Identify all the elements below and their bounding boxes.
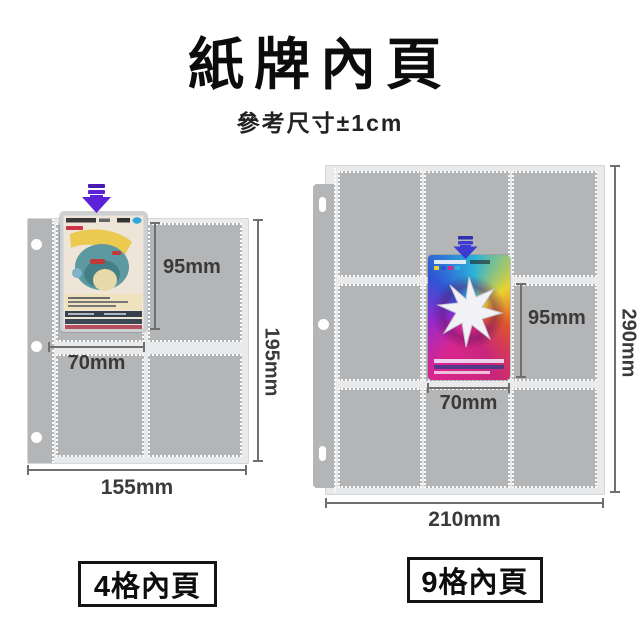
pocket	[338, 284, 422, 381]
dimension-line-card-width	[427, 387, 510, 389]
trading-card	[60, 212, 147, 332]
pocket	[338, 171, 422, 277]
pocket	[512, 284, 597, 381]
card-width-label: 70mm	[48, 352, 145, 375]
dimension-line-page-width	[27, 469, 247, 471]
trading-card	[428, 255, 510, 380]
card-width-label: 70mm	[427, 392, 510, 415]
down-arrow-icon	[452, 236, 479, 259]
nine-pocket-caption: 9格內頁	[407, 557, 543, 603]
dimension-line-card-width	[48, 346, 145, 348]
pocket	[148, 223, 242, 342]
page-width-label: 155mm	[27, 476, 247, 500]
four-pocket-caption: 4格內頁	[78, 561, 217, 607]
binder-hole	[31, 341, 42, 352]
nine-pocket-caption-text: 9格內頁	[421, 559, 528, 601]
dimension-line-page-width	[325, 502, 604, 504]
binder-hole	[319, 197, 326, 212]
pocket	[148, 354, 242, 457]
binder-hole	[319, 446, 326, 461]
binder-hole	[31, 432, 42, 443]
four-pocket-caption-text: 4格內頁	[94, 563, 201, 605]
binder-hole	[31, 239, 42, 250]
pocket	[512, 388, 597, 488]
card-height-label: 95mm	[528, 307, 586, 330]
card-height-label: 95mm	[163, 256, 221, 279]
binder-hole	[318, 319, 329, 330]
pocket	[338, 388, 422, 488]
binding-strip	[313, 184, 335, 488]
pocket	[512, 171, 597, 277]
stitch-seam	[334, 168, 336, 492]
down-arrow-icon	[80, 184, 113, 213]
page-width-label: 210mm	[325, 508, 604, 532]
page-height-label: 290mm	[617, 309, 640, 371]
binding-strip	[28, 219, 54, 463]
product-diagram: 紙牌內頁 參考尺寸±1cm	[0, 0, 640, 640]
dimension-line-card-height	[154, 222, 156, 330]
page-title: 紙牌內頁	[0, 20, 640, 101]
page-height-label: 195mm	[260, 328, 283, 388]
dimension-line-card-height	[520, 283, 522, 378]
page-subtitle: 參考尺寸±1cm	[0, 104, 640, 138]
